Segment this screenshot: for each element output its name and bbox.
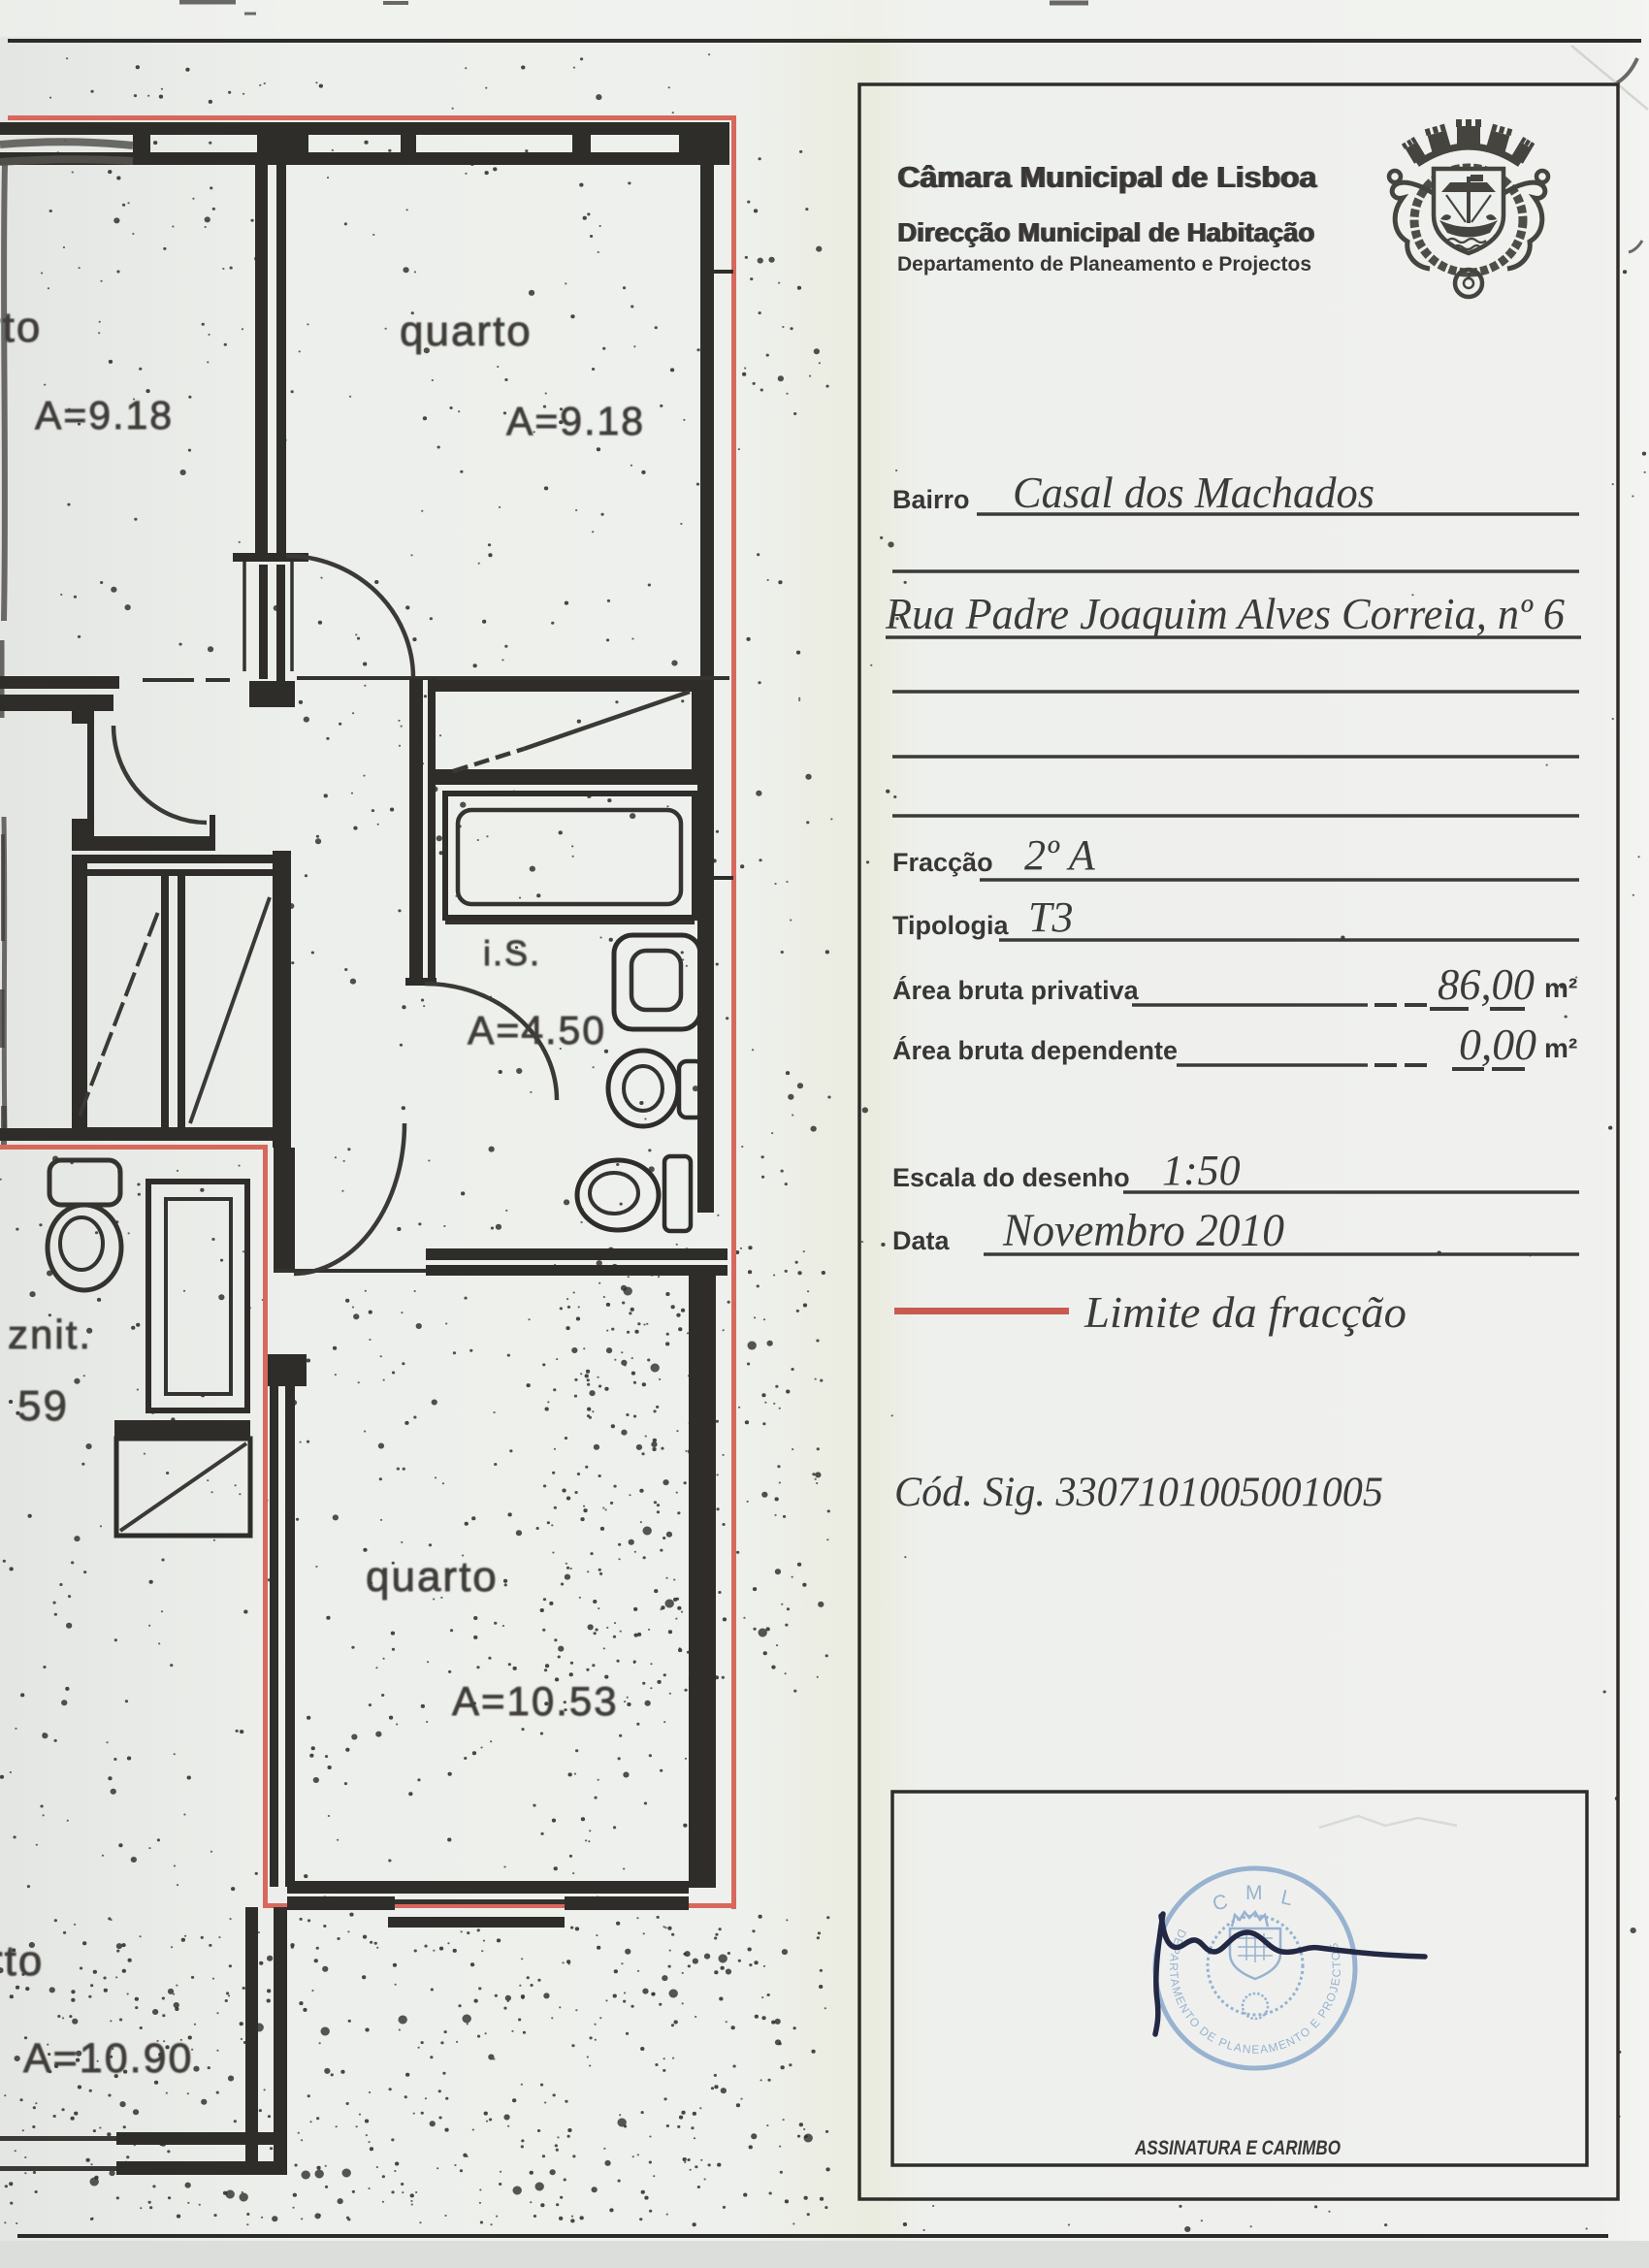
svg-text:Câmara Municipal de Lisboa: Câmara Municipal de Lisboa bbox=[897, 160, 1317, 194]
svg-text:59: 59 bbox=[17, 1382, 69, 1430]
svg-text:2º A: 2º A bbox=[1024, 831, 1096, 879]
svg-text:A=4.50: A=4.50 bbox=[468, 1008, 606, 1053]
svg-text:Tipologia: Tipologia bbox=[892, 911, 1009, 940]
svg-text:1:50: 1:50 bbox=[1162, 1147, 1241, 1194]
svg-text:86,00: 86,00 bbox=[1438, 959, 1535, 1009]
svg-text:m²: m² bbox=[1544, 1033, 1577, 1063]
svg-text:Novembro 2010: Novembro 2010 bbox=[1002, 1205, 1284, 1256]
svg-text:A=9.18: A=9.18 bbox=[506, 399, 645, 443]
svg-text:rto: rto bbox=[0, 1937, 44, 1985]
svg-text:A=10.90: A=10.90 bbox=[23, 2035, 193, 2082]
svg-text:Área bruta privativa: Área bruta privativa bbox=[892, 975, 1140, 1005]
svg-text:Departamento de Planeamento e: Departamento de Planeamento e Projectos bbox=[897, 252, 1311, 275]
svg-text:quarto: quarto bbox=[400, 308, 533, 355]
svg-text:znit.: znit. bbox=[8, 1312, 92, 1357]
svg-text:Casal dos Machados: Casal dos Machados bbox=[1013, 468, 1374, 517]
svg-text:Direcção Municipal de Habitaçã: Direcção Municipal de Habitação bbox=[897, 217, 1314, 247]
svg-text:Escala do desenho: Escala do desenho bbox=[892, 1163, 1130, 1192]
svg-text:M: M bbox=[1245, 1882, 1263, 1904]
svg-text:0,00: 0,00 bbox=[1459, 1020, 1536, 1069]
svg-text:Limite da fracção: Limite da fracção bbox=[1083, 1287, 1406, 1337]
svg-text:Data: Data bbox=[892, 1226, 951, 1255]
svg-text:i.S.: i.S. bbox=[483, 933, 541, 973]
svg-text:Bairro: Bairro bbox=[892, 485, 970, 514]
svg-text:m²: m² bbox=[1544, 973, 1577, 1003]
svg-text:Cód. Sig. 3307101005001005: Cód. Sig. 3307101005001005 bbox=[894, 1470, 1383, 1515]
svg-text:Fracção: Fracção bbox=[892, 848, 993, 877]
svg-text:T3: T3 bbox=[1028, 893, 1073, 941]
svg-text:Área bruta dependente: Área bruta dependente bbox=[892, 1035, 1178, 1065]
svg-text:rto: rto bbox=[0, 304, 42, 351]
svg-text:A=10.53: A=10.53 bbox=[452, 1678, 619, 1724]
svg-text:quarto: quarto bbox=[366, 1553, 499, 1601]
svg-text:ASSINATURA E CARIMBO: ASSINATURA E CARIMBO bbox=[1134, 2137, 1341, 2159]
svg-text:A=9.18: A=9.18 bbox=[35, 393, 174, 437]
svg-text:Rua Padre Joaquim Alves Correi: Rua Padre Joaquim Alves Correia, nº 6 bbox=[885, 590, 1565, 638]
